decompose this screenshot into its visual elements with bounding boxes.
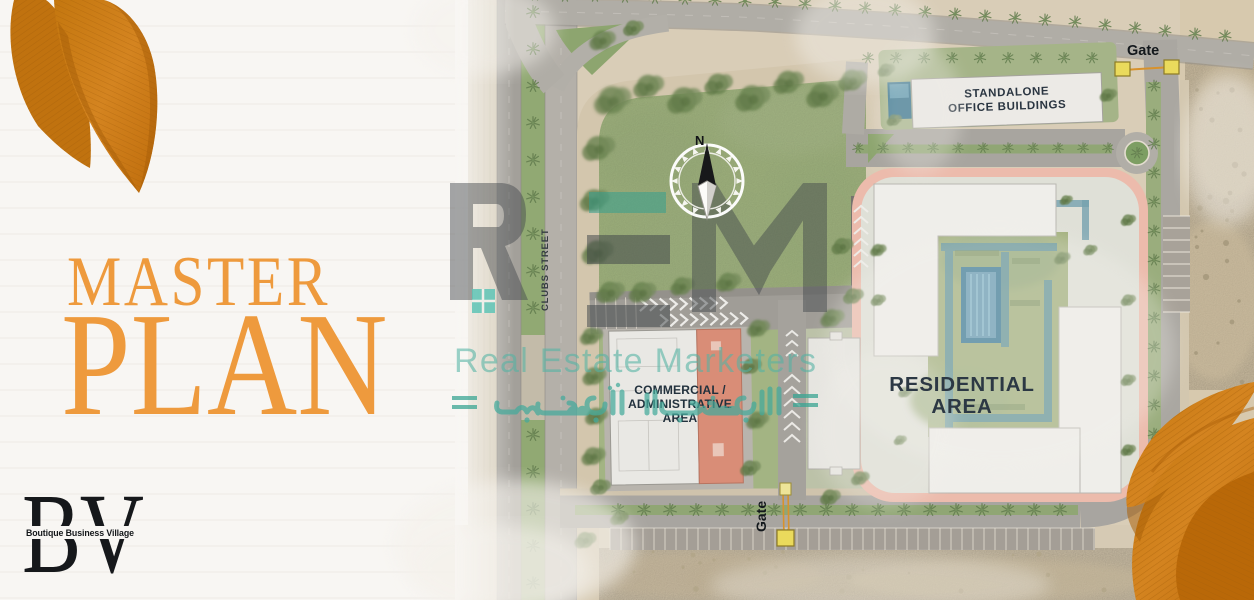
svg-text:PLAN: PLAN — [61, 282, 388, 446]
svg-text:CLUBS STREET: CLUBS STREET — [540, 229, 551, 311]
svg-text:AREA: AREA — [931, 395, 992, 418]
svg-text:RESIDENTIAL: RESIDENTIAL — [889, 373, 1034, 396]
svg-text:Gate: Gate — [753, 501, 769, 532]
svg-text:Boutique Business Village: Boutique Business Village — [26, 528, 134, 538]
svg-text:Gate: Gate — [1127, 43, 1159, 59]
svg-text:Real Estate Marketers: Real Estate Marketers — [454, 342, 818, 380]
svg-text:N: N — [695, 133, 704, 148]
